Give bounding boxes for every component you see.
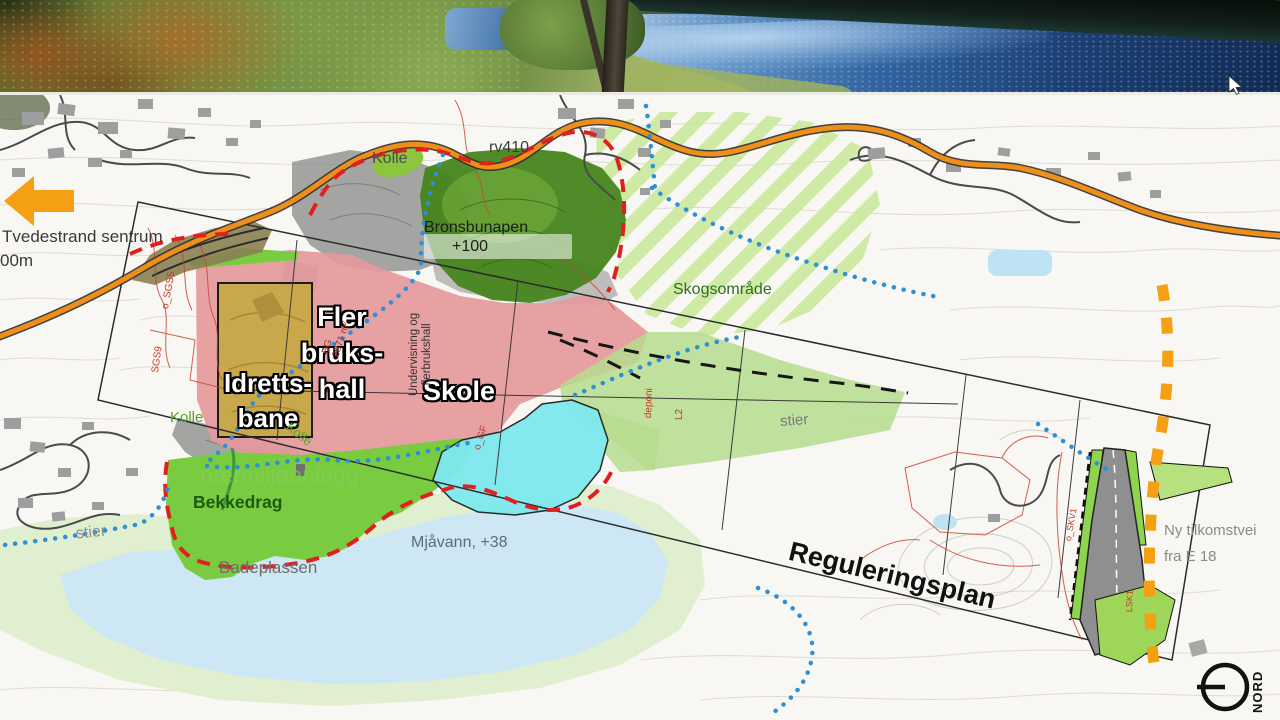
site-photo-banner [0,0,1280,95]
hill-highlight [442,167,558,243]
pond-in-plan [933,514,957,530]
planning-map-page: Tvedestrand sentrum 00m Kolle rv410 Bron… [0,0,1280,720]
pond-upper-right [988,250,1052,276]
cursor-icon [1228,76,1242,95]
zoning-map [0,95,1280,720]
zone-idrettsbane [218,283,312,437]
